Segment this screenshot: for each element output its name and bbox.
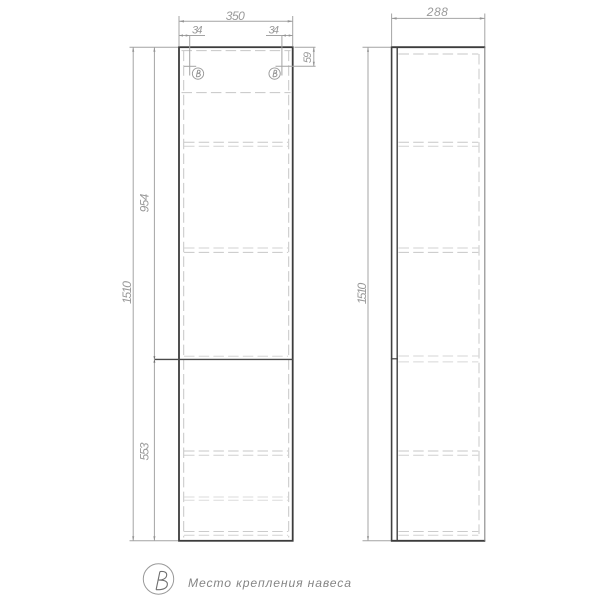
svg-text:954: 954 <box>138 193 152 212</box>
svg-text:34: 34 <box>269 24 280 36</box>
svg-text:1510: 1510 <box>355 283 369 305</box>
svg-text:288: 288 <box>426 5 448 19</box>
svg-text:553: 553 <box>138 442 152 460</box>
svg-text:1510: 1510 <box>120 281 134 304</box>
svg-text:59: 59 <box>302 52 314 63</box>
svg-text:34: 34 <box>192 24 203 36</box>
svg-text:350: 350 <box>226 9 245 23</box>
svg-text:Место крепления навеса: Место крепления навеса <box>188 576 351 590</box>
